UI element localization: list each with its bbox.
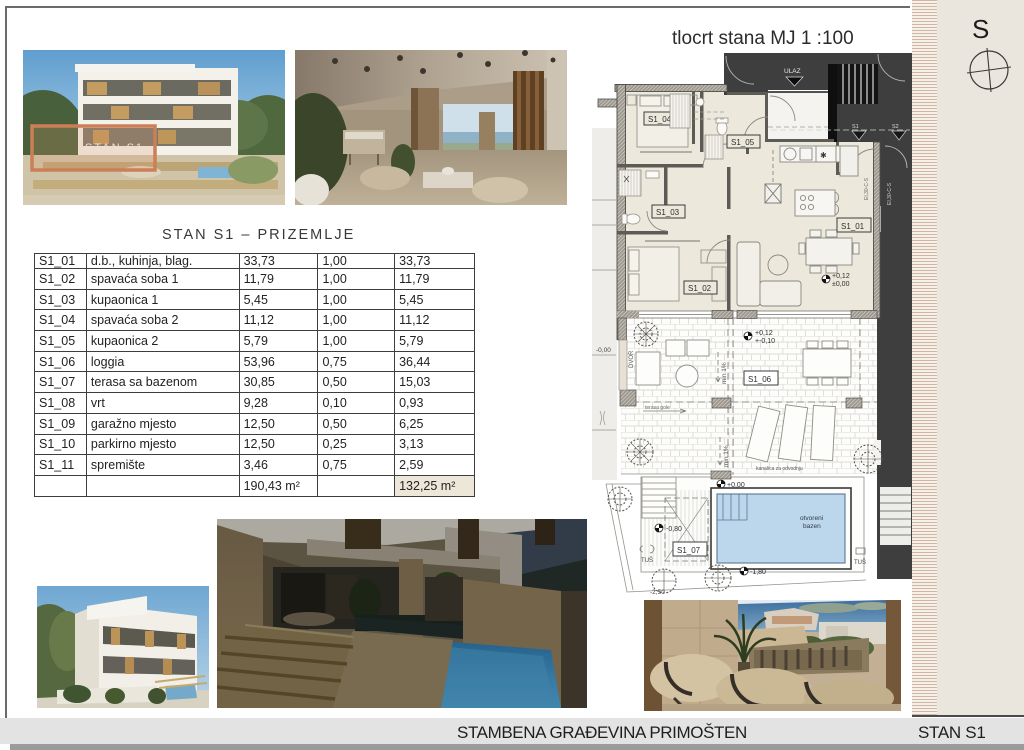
svg-text:DVOR: DVOR	[629, 350, 635, 368]
svg-text:-0,00: -0,00	[596, 347, 611, 354]
svg-text:EI,30-C-S: EI,30-C-S	[887, 182, 893, 205]
svg-text:S1_03: S1_03	[656, 208, 680, 217]
svg-text:+-0,10: +-0,10	[755, 338, 775, 345]
svg-text:S1_07: S1_07	[677, 546, 701, 555]
svg-text:S1_06: S1_06	[748, 375, 772, 384]
svg-text:ULAZ: ULAZ	[784, 68, 801, 75]
svg-text:S1_01: S1_01	[841, 222, 865, 231]
svg-text:-1,80: -1,80	[750, 569, 766, 576]
svg-text:otvoreni: otvoreni	[800, 515, 823, 522]
svg-text:bazen: bazen	[803, 523, 821, 530]
svg-text:TUŠ: TUŠ	[854, 559, 866, 566]
svg-text:S1: S1	[852, 124, 859, 130]
svg-text:+0,12: +0,12	[755, 330, 773, 337]
svg-text:+0,12: +0,12	[832, 273, 850, 280]
svg-text:kanalica za odvodnju: kanalica za odvodnju	[756, 466, 803, 472]
svg-text:✱: ✱	[820, 151, 827, 160]
svg-text:min 1%: min 1%	[723, 445, 730, 467]
svg-text:TUŠ: TUŠ	[641, 557, 653, 564]
svg-text:-0,80: -0,80	[666, 526, 682, 533]
svg-text:terasa gole: terasa gole	[645, 405, 670, 411]
svg-text:S1_02: S1_02	[688, 284, 712, 293]
svg-text:STAN S1: STAN S1	[85, 142, 144, 154]
svg-text:min 1%: min 1%	[721, 362, 728, 384]
svg-text:S1_04: S1_04	[648, 115, 672, 124]
svg-text:EI,30-C-S: EI,30-C-S	[864, 177, 870, 200]
svg-text:S1_05: S1_05	[731, 138, 755, 147]
svg-text:±0,00: ±0,00	[832, 281, 850, 288]
svg-text:S2: S2	[892, 124, 899, 130]
